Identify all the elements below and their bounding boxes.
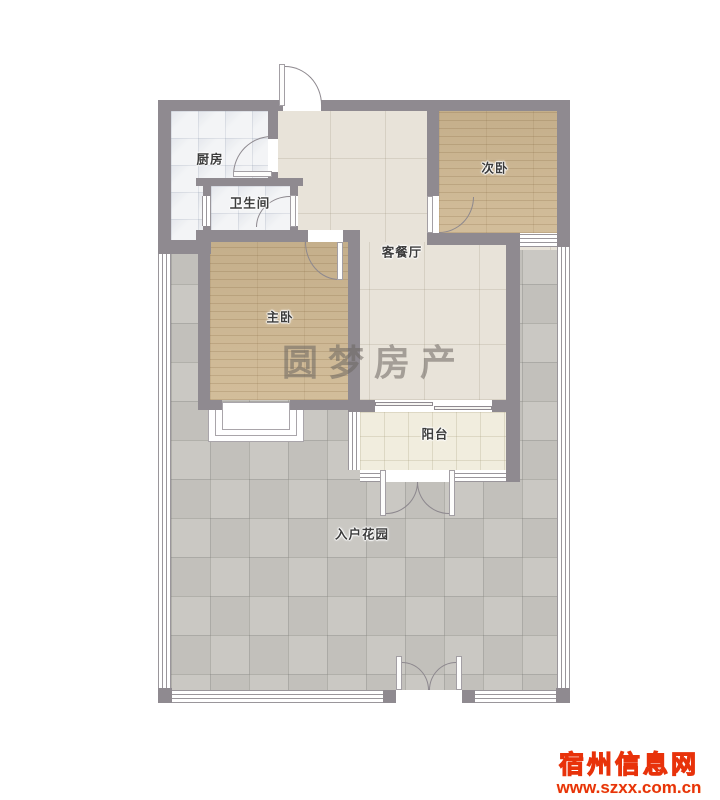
balcony-label: 阳台 — [421, 424, 448, 443]
site-watermark-name: 宿州信息网 — [544, 745, 714, 781]
post-garden-door-right — [462, 690, 475, 703]
window-garden-right — [557, 247, 570, 688]
wall-balcony-top-right — [492, 400, 520, 412]
wall-master-left — [198, 242, 210, 410]
post-bottom-right-corner — [556, 688, 570, 703]
agency-watermark: 圆梦房产 — [282, 334, 466, 386]
wall-master-bottom-left — [198, 400, 222, 410]
wall-right-upper — [557, 111, 570, 247]
wall-kitchen-right-a — [268, 111, 278, 139]
wall-bathroom-top — [196, 178, 303, 186]
kitchen-door-leaf — [233, 171, 272, 177]
floor-plan-canvas: 厨房 卫生间 次卧 客餐厅 主卧 阳台 入户花园 圆梦房产 宿州信息网 www.… — [0, 0, 720, 800]
balcony-sliding-panel-left — [375, 402, 433, 406]
master-door-opening — [308, 230, 343, 242]
secondary-bedroom-label: 次卧 — [481, 158, 508, 177]
kitchen-floor-strip — [171, 111, 203, 240]
balcony-door-leaf-right — [449, 470, 455, 516]
wall-top-left — [158, 100, 283, 111]
wall-secondary-bottom — [427, 233, 520, 245]
window-balcony-bottom-right — [452, 470, 506, 482]
bathroom-label: 卫生间 — [230, 193, 271, 212]
wall-living-right — [506, 245, 520, 482]
balcony-door-leaf-left — [380, 470, 386, 516]
site-watermark: 宿州信息网 www.szxx.com.cn — [544, 745, 714, 798]
master-door-leaf — [337, 242, 343, 280]
wall-master-top — [196, 230, 308, 242]
garden-door-leaf-left — [396, 656, 402, 690]
window-bathroom-left — [202, 196, 211, 226]
wall-secondary-left-a — [427, 111, 439, 196]
balcony-door-opening — [383, 470, 452, 482]
garden-door-opening — [396, 690, 462, 703]
wall-left-upper — [158, 111, 171, 254]
secondary-door-leaf — [427, 196, 433, 233]
site-watermark-url: www.szxx.com.cn — [544, 778, 714, 798]
wall-master-top-post — [343, 230, 360, 242]
window-secondary-bedroom — [520, 233, 557, 247]
entrance-garden-label: 入户花园 — [335, 524, 389, 543]
post-garden-door-left — [383, 690, 396, 703]
window-garden-bottom-left — [172, 690, 383, 703]
balcony-sliding-panel-right — [434, 406, 492, 410]
bathroom-door-leaf — [290, 195, 296, 227]
window-garden-left — [158, 254, 171, 688]
wall-balcony-top-left — [348, 400, 375, 412]
garden-door-leaf-right — [456, 656, 462, 690]
master-bedroom-label: 主卧 — [266, 307, 293, 326]
post-bottom-left-corner — [158, 688, 172, 703]
entry-door-leaf — [279, 64, 285, 106]
window-balcony-left — [348, 412, 360, 470]
window-garden-bottom-right — [475, 690, 556, 703]
bay-window-sill — [222, 402, 290, 430]
living-dining-label: 客餐厅 — [382, 242, 423, 261]
entry-door-swing-arc — [285, 66, 322, 105]
kitchen-label: 厨房 — [196, 149, 223, 168]
wall-top-right — [321, 100, 570, 111]
